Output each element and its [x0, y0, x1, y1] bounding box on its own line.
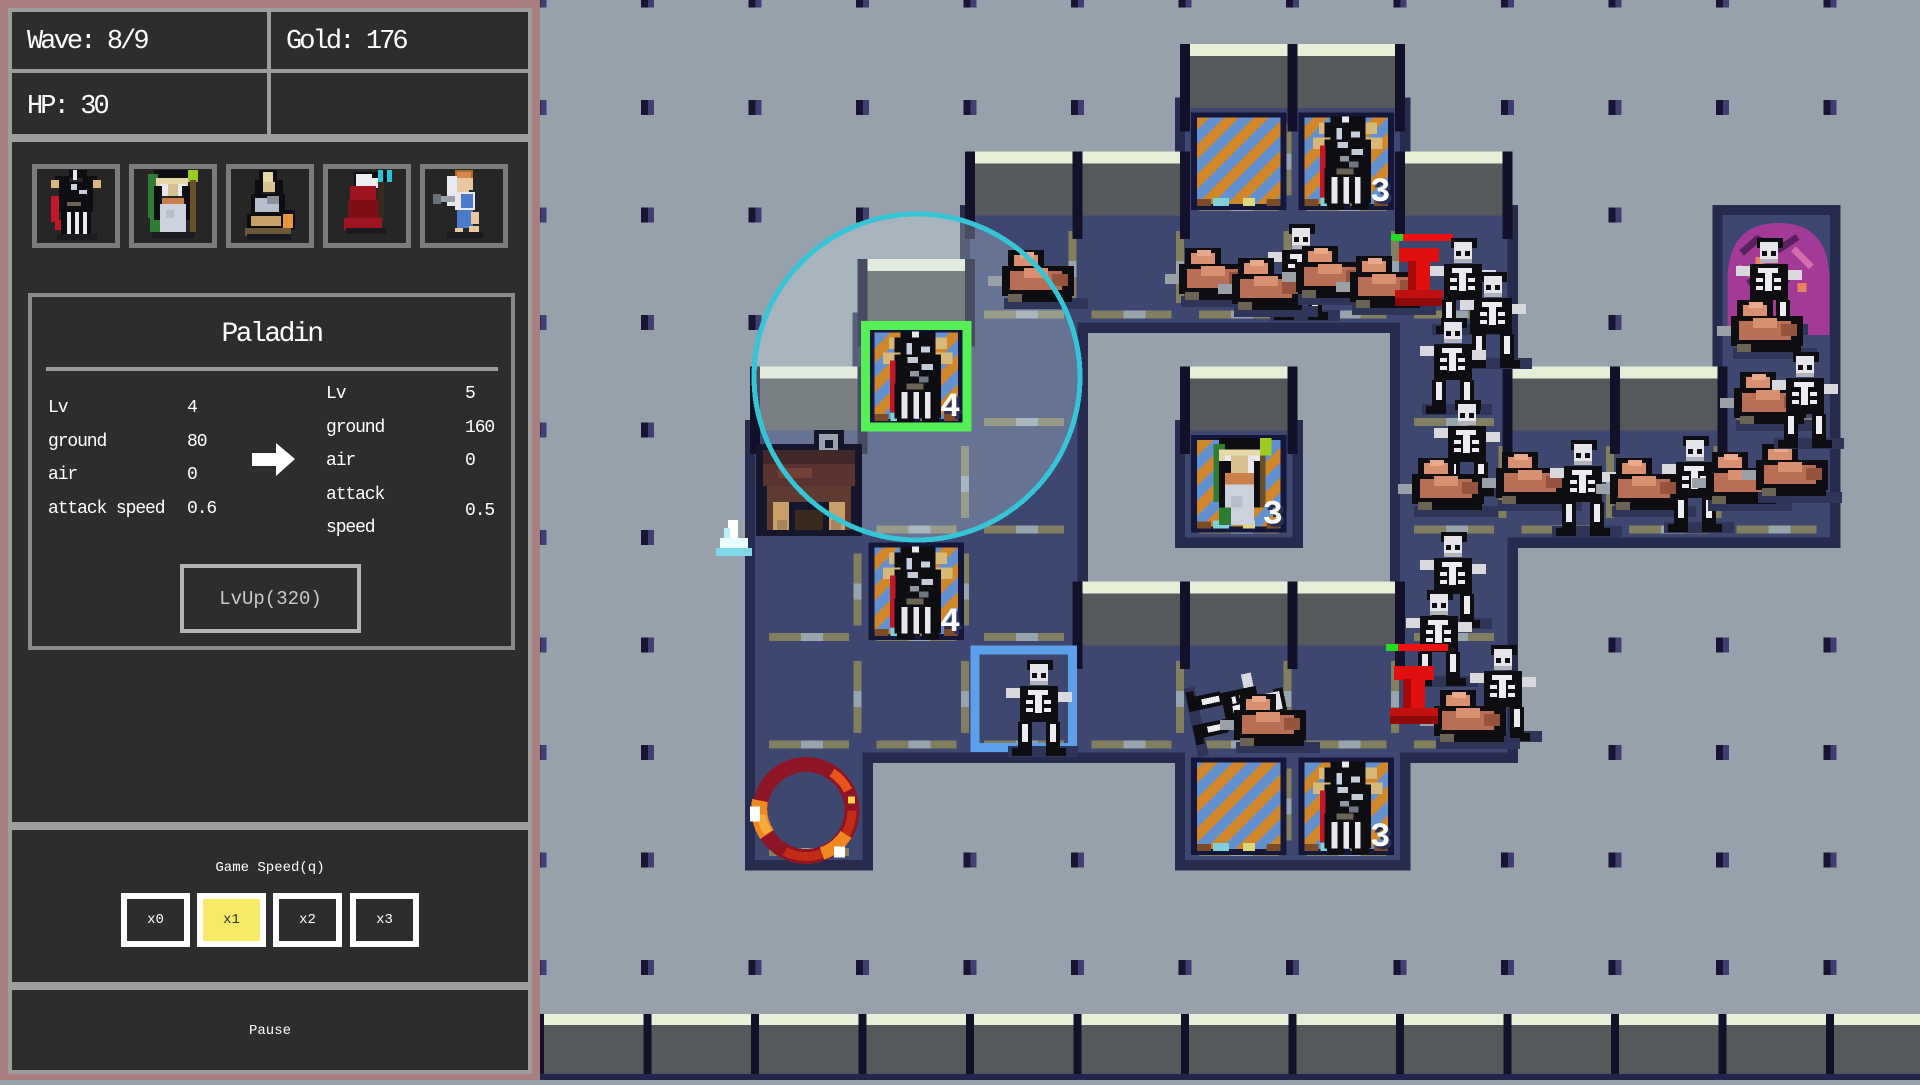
svg-text:3: 3 [1370, 174, 1390, 212]
svg-text:4: 4 [940, 604, 960, 642]
svg-text:4: 4 [940, 389, 960, 427]
svg-text:3: 3 [1263, 497, 1283, 535]
svg-text:3: 3 [1370, 819, 1390, 857]
